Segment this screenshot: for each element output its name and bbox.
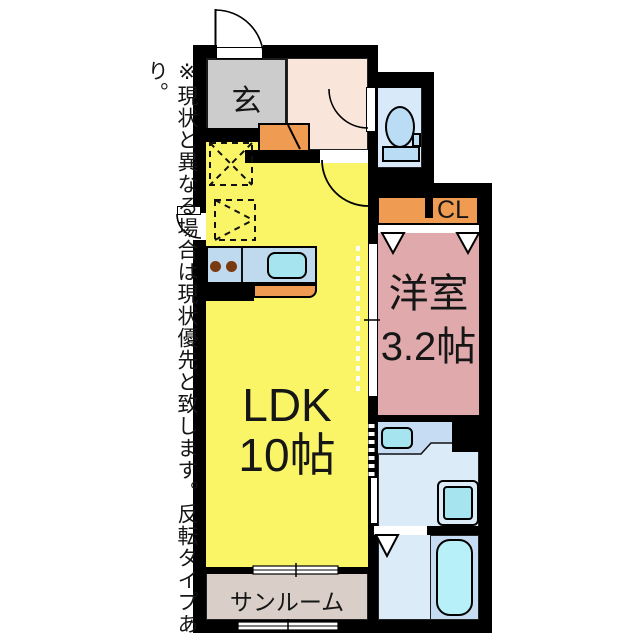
shoe-cabinet [258, 123, 310, 152]
ldk-label: LDK 10帖 [206, 380, 368, 480]
wall-bottom [193, 620, 492, 633]
wall-bath-divider [427, 526, 479, 535]
disclaimer-text: ※現状と異なる場合は現状優先と致します。反転タイプあり。 [141, 60, 201, 635]
western-label-text: 洋室 [378, 268, 479, 321]
genkan-label: 玄 [206, 76, 287, 120]
toilet-bowl [385, 106, 415, 148]
bathtub [436, 539, 473, 616]
sliding-door-washroom [370, 477, 378, 524]
stove-burner-left [210, 261, 221, 272]
ldk-size-text: 10帖 [206, 430, 368, 480]
toilet-armrest [412, 133, 421, 147]
kitchen-counter-divider [241, 248, 243, 282]
entrance-door-leaf [216, 47, 263, 59]
washing-machine [381, 427, 413, 449]
sunroom-label: サンルーム [206, 583, 368, 617]
genkan-label-text: 玄 [232, 85, 262, 118]
bath-door-opening [374, 526, 427, 535]
western-room-label: 洋室 3.2帖 [378, 268, 479, 374]
ldk-label-text: LDK [206, 380, 368, 430]
closet-hanger-strip [379, 225, 478, 233]
toilet-door-leaf [366, 87, 376, 132]
kitchen-base-block [206, 284, 254, 301]
hall-ldk-opening [320, 150, 368, 163]
vanity-sink-basin [443, 486, 473, 520]
wall-closet-top [425, 183, 491, 196]
floorplan-canvas: ※現状と異なる場合は現状優先と致します。反転タイプあり。 玄 LDK 10帖 洋… [0, 0, 640, 640]
sunroom-label-text: サンルーム [230, 589, 344, 615]
closet-label-text: CL [437, 196, 469, 224]
room-ldk [206, 140, 368, 567]
wall-washroom-corner [452, 415, 479, 452]
closet-label: CL [425, 196, 481, 225]
kitchen-counter-front [253, 284, 317, 298]
sliding-door-western [368, 243, 378, 397]
western-size-text: 3.2帖 [378, 321, 479, 374]
wall-right [479, 183, 492, 633]
wall-sunroom-top [206, 567, 368, 574]
kitchen-sink [267, 252, 307, 279]
wall-genkan-bottom [193, 128, 258, 142]
toilet-tank [382, 146, 420, 162]
stove-burner-right [226, 261, 237, 272]
